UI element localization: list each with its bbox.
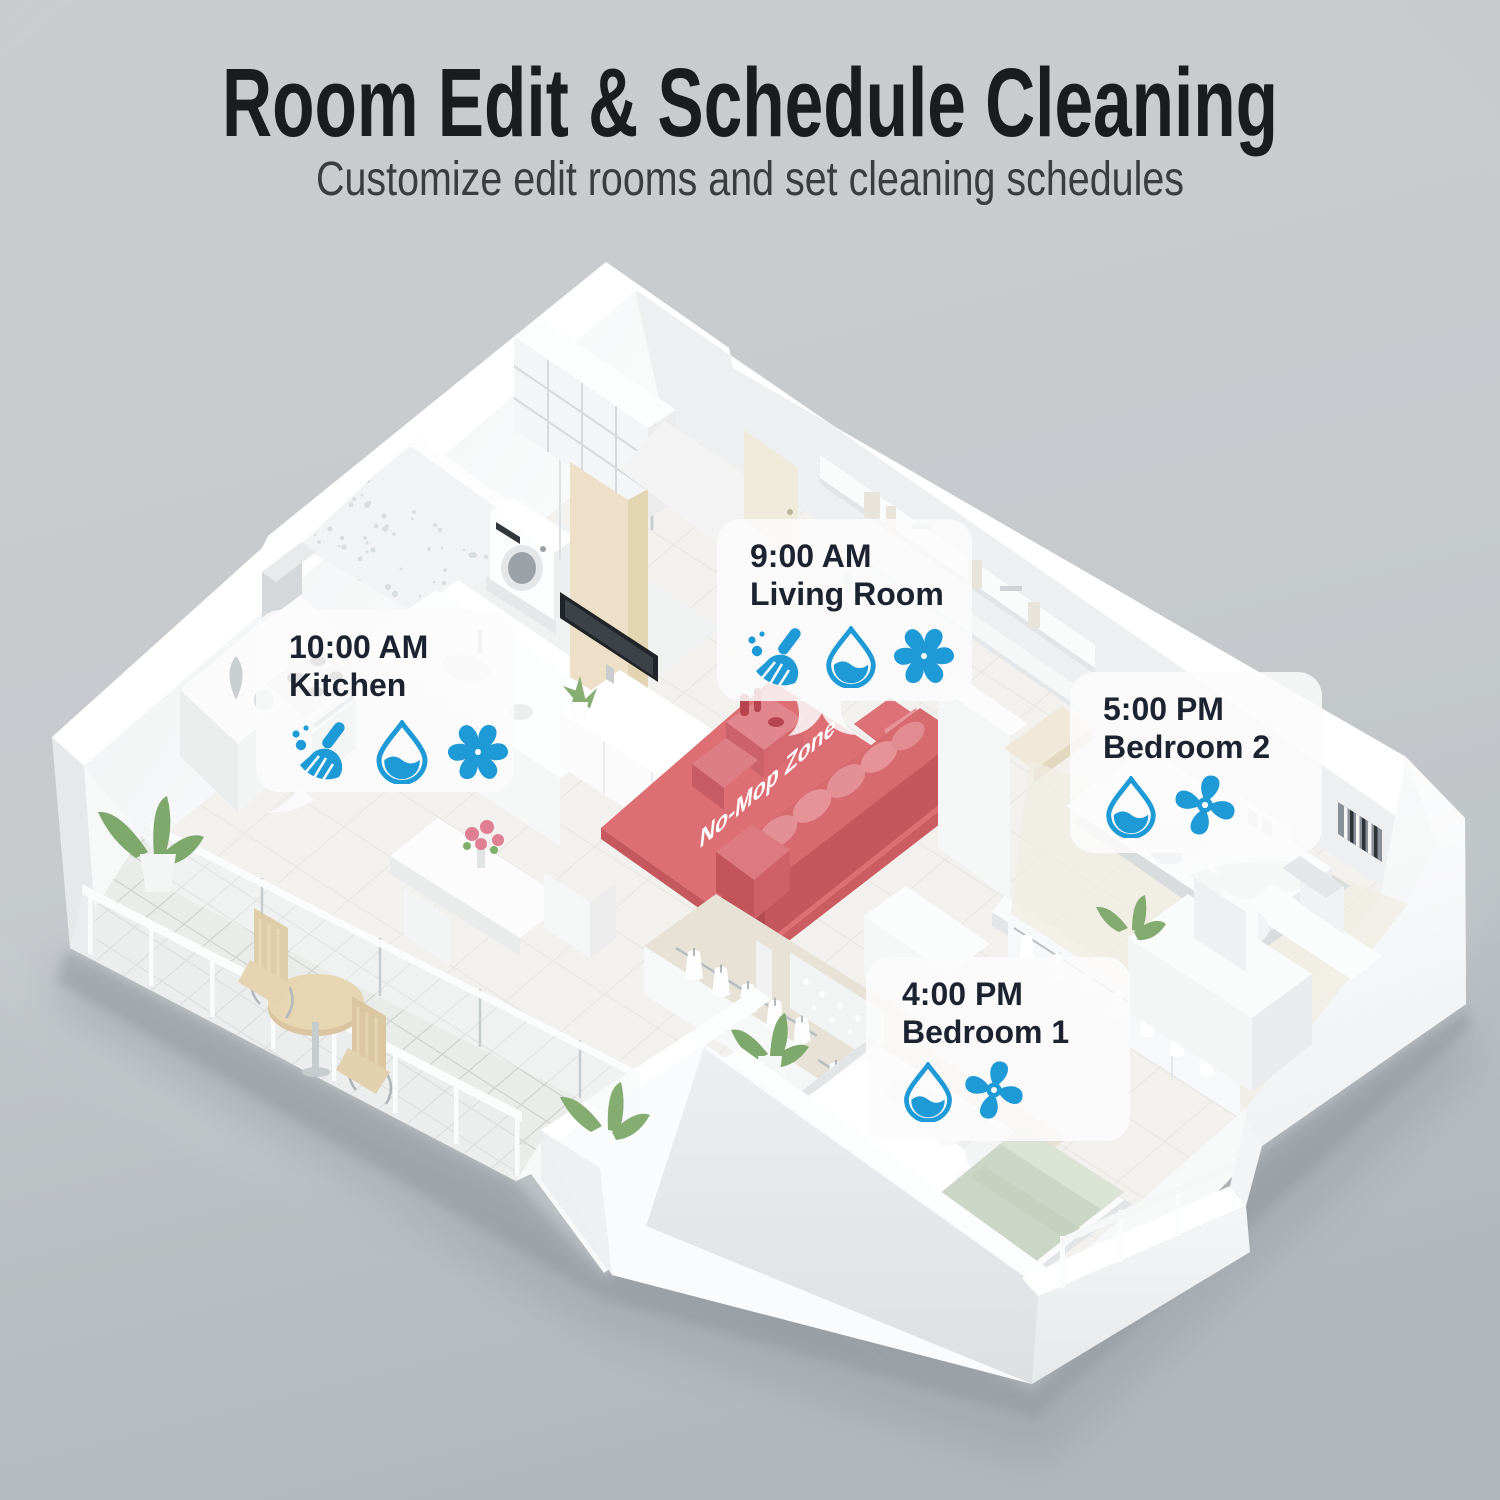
svg-text:Living Room: Living Room <box>750 576 944 612</box>
svg-text:Room Edit & Schedule Cleaning: Room Edit & Schedule Cleaning <box>222 48 1278 157</box>
svg-text:Kitchen: Kitchen <box>289 667 406 703</box>
svg-text:Bedroom 2: Bedroom 2 <box>1103 729 1270 765</box>
svg-text:5:00 PM: 5:00 PM <box>1103 691 1224 727</box>
svg-text:Bedroom 1: Bedroom 1 <box>902 1014 1069 1050</box>
svg-text:9:00 AM: 9:00 AM <box>750 538 872 574</box>
svg-text:4:00 PM: 4:00 PM <box>902 976 1023 1012</box>
svg-text:10:00 AM: 10:00 AM <box>289 629 428 665</box>
svg-text:Customize edit rooms and set c: Customize edit rooms and set cleaning sc… <box>316 153 1184 206</box>
